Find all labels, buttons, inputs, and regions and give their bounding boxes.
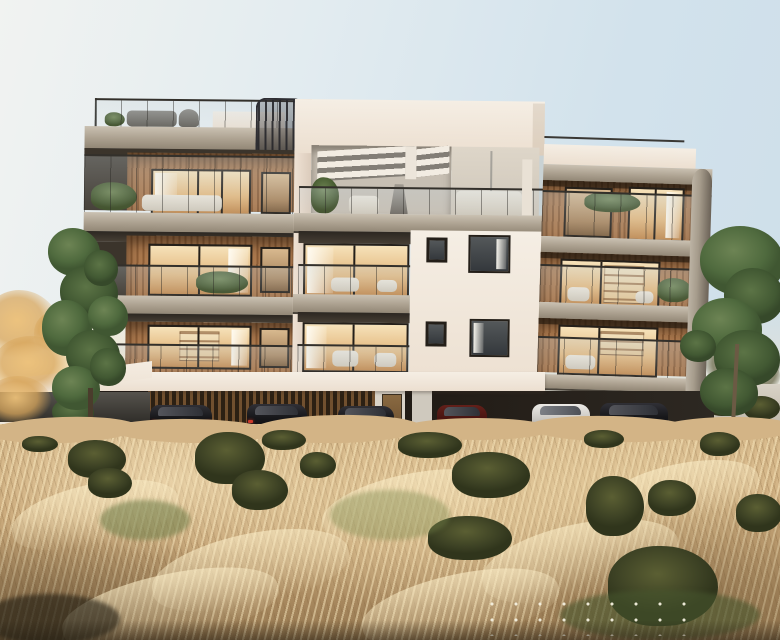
meadow-bush xyxy=(584,430,624,448)
meadow-bush xyxy=(648,480,696,516)
tree-canopy xyxy=(700,368,758,416)
corner-post xyxy=(522,159,533,215)
meadow-bush xyxy=(452,452,530,498)
tree-canopy xyxy=(90,348,126,386)
glass-balustrade xyxy=(298,264,410,297)
meadow-bush xyxy=(88,468,132,498)
tree-canopy xyxy=(88,296,128,336)
meadow-bush xyxy=(700,432,740,456)
pergola-louvers xyxy=(317,146,405,181)
small-window xyxy=(425,321,446,346)
architectural-render xyxy=(0,0,780,640)
green-grass-patch xyxy=(100,500,190,540)
fascia-band xyxy=(85,372,545,391)
meadow-bush xyxy=(262,430,306,450)
tree-canopy xyxy=(84,250,118,286)
tree-branch xyxy=(680,330,716,362)
meadow-bush xyxy=(22,436,58,452)
glass-balustrade xyxy=(541,190,711,243)
meadow-bush xyxy=(736,494,780,532)
meadow-bush xyxy=(398,432,462,458)
grass-meadow xyxy=(0,424,780,640)
glass-balustrade xyxy=(297,344,409,374)
meadow-bush xyxy=(232,470,288,510)
small-window xyxy=(426,237,447,262)
window xyxy=(469,319,509,357)
glass-balustrade xyxy=(84,154,300,214)
pergola-beam xyxy=(405,146,416,179)
white-wall xyxy=(409,230,544,394)
meadow-bush xyxy=(300,452,336,478)
green-grass-patch xyxy=(330,490,450,540)
window xyxy=(468,235,510,273)
right-wing xyxy=(536,118,714,415)
pergola-louvers xyxy=(416,146,449,178)
meadow-bush xyxy=(586,476,644,536)
